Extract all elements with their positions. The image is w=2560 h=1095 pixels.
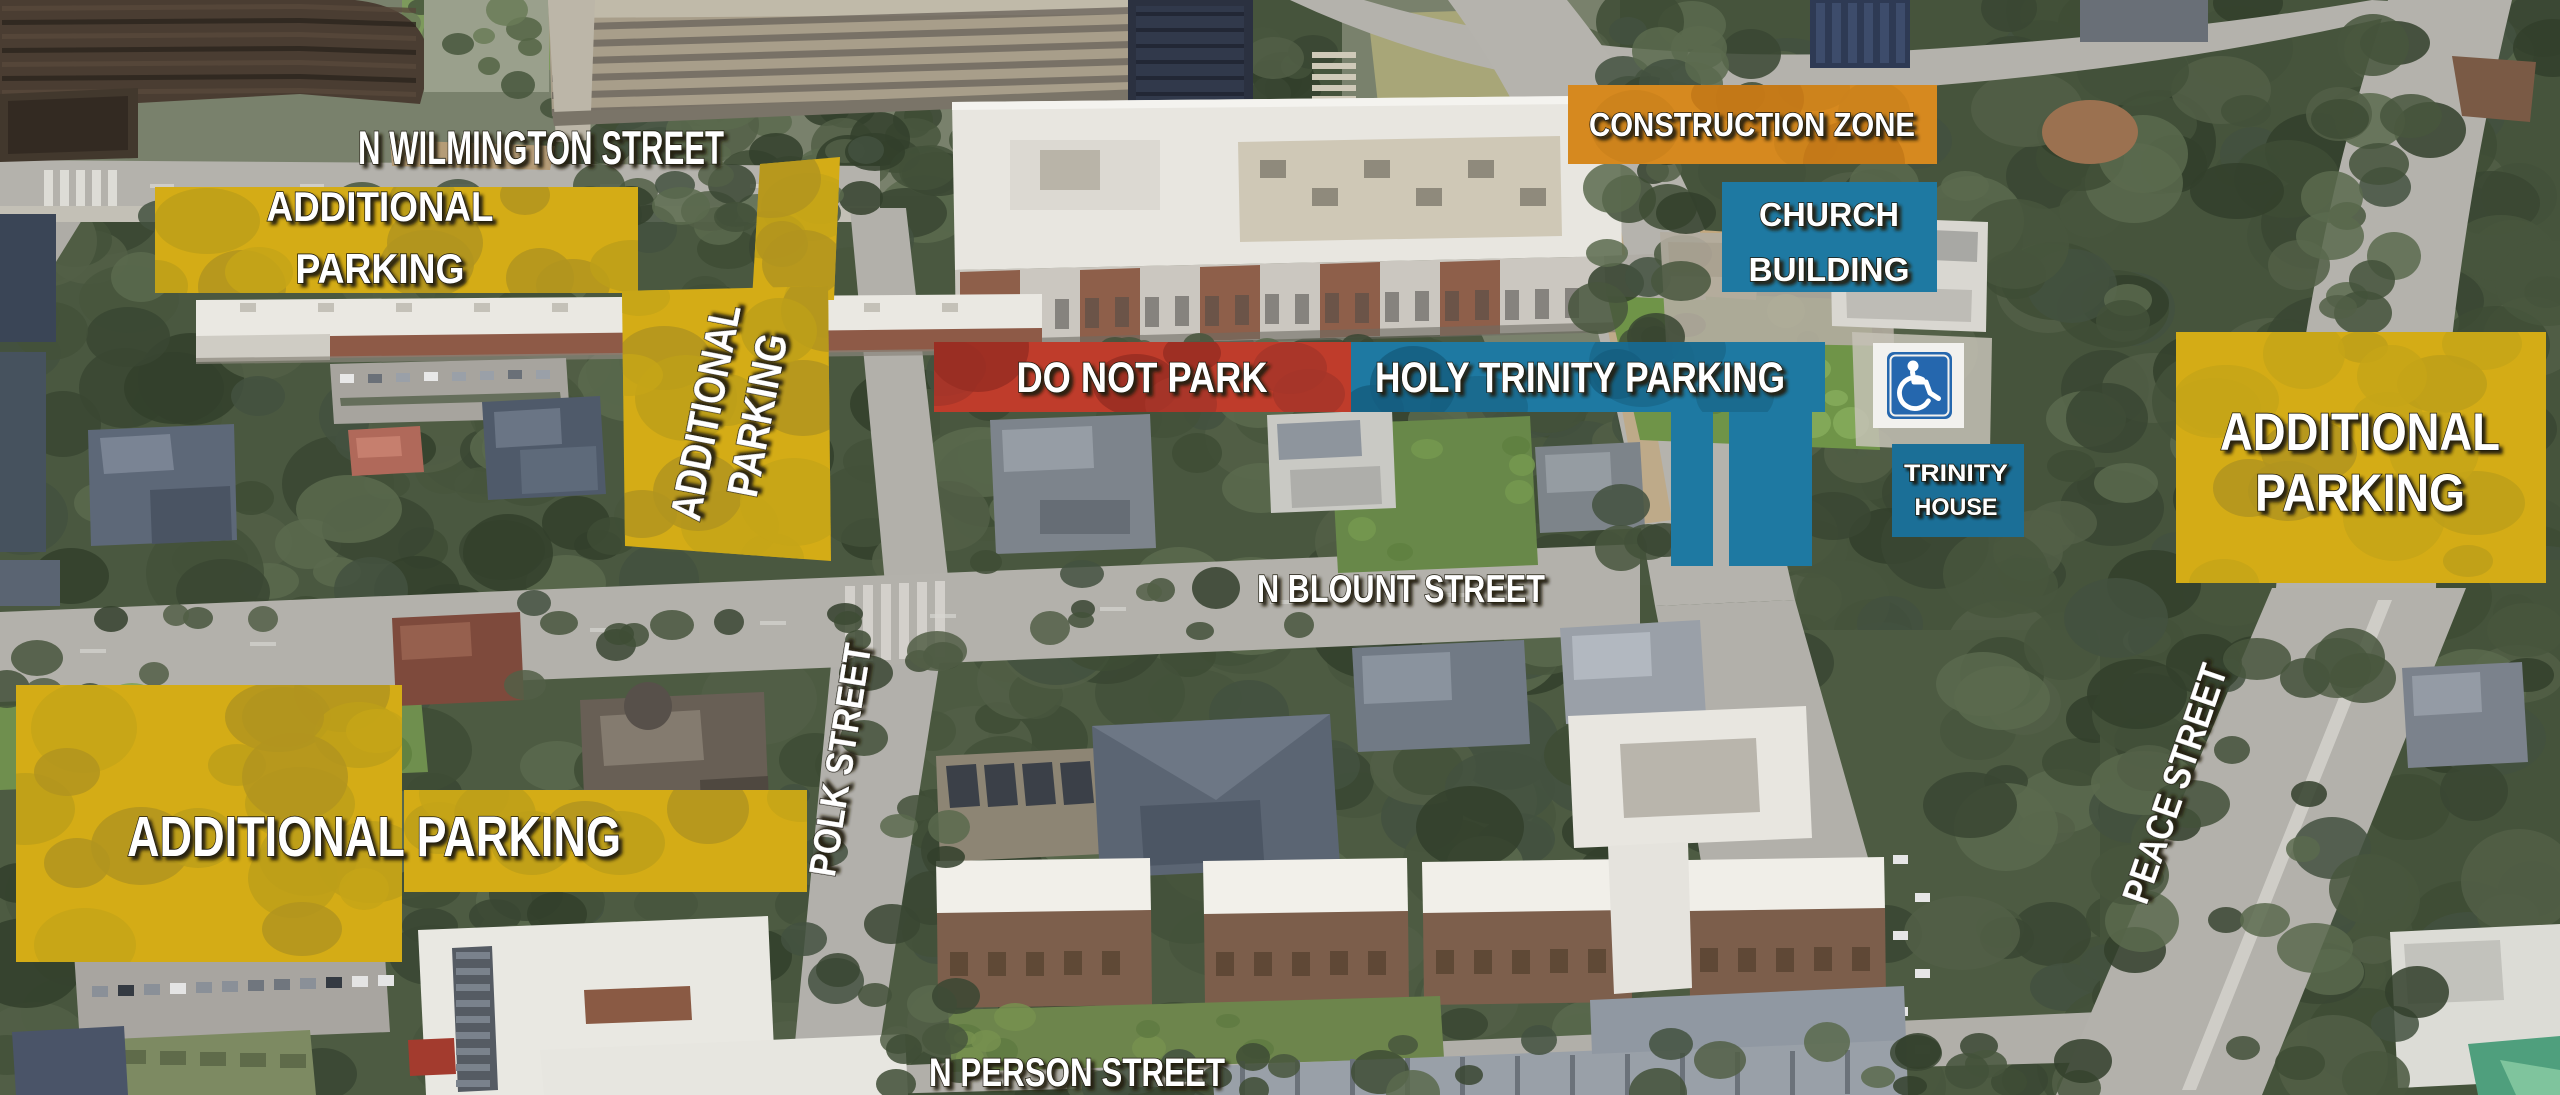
svg-text:DO NOT PARK: DO NOT PARK <box>1017 354 1268 402</box>
svg-text:PARKING: PARKING <box>2255 464 2465 523</box>
svg-text:ADDITIONAL: ADDITIONAL <box>267 183 494 230</box>
svg-text:CONSTRUCTION ZONE: CONSTRUCTION ZONE <box>1589 106 1915 143</box>
svg-text:TRINITY: TRINITY <box>1904 460 2008 487</box>
svg-text:BUILDING: BUILDING <box>1749 251 1910 288</box>
svg-text:CHURCH: CHURCH <box>1759 196 1899 233</box>
svg-text:N BLOUNT STREET: N BLOUNT STREET <box>1257 568 1545 611</box>
svg-text:HOLY TRINITY PARKING: HOLY TRINITY PARKING <box>1375 354 1785 402</box>
svg-text:N PERSON STREET: N PERSON STREET <box>929 1051 1225 1095</box>
svg-text:ADDITIONAL: ADDITIONAL <box>2220 403 2500 462</box>
svg-text:HOUSE: HOUSE <box>1915 494 1998 521</box>
svg-text:PARKING: PARKING <box>296 245 465 292</box>
svg-text:ADDITIONAL PARKING: ADDITIONAL PARKING <box>127 805 621 869</box>
svg-text:N WILMINGTON STREET: N WILMINGTON STREET <box>358 121 724 174</box>
